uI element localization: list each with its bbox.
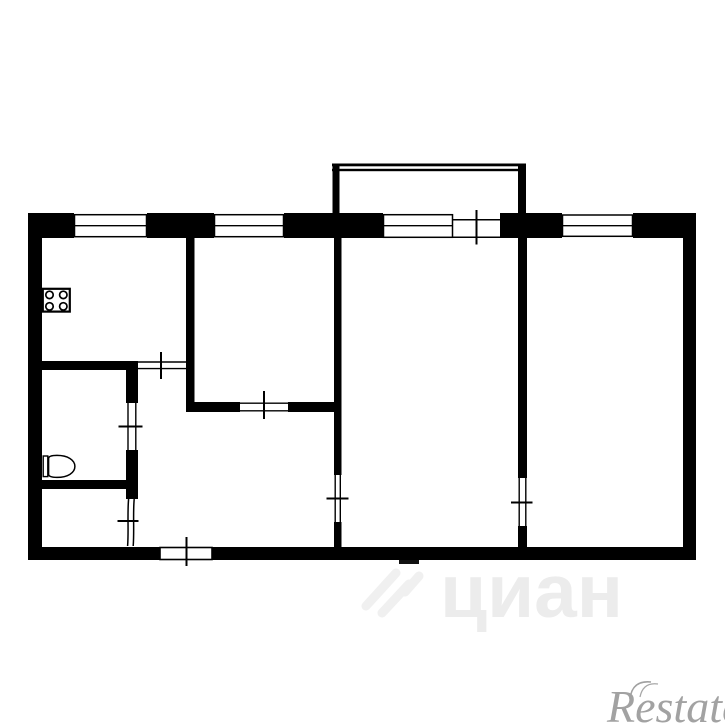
svg-text:циан: циан (440, 549, 623, 633)
svg-text:Restate: Restate (606, 681, 725, 725)
